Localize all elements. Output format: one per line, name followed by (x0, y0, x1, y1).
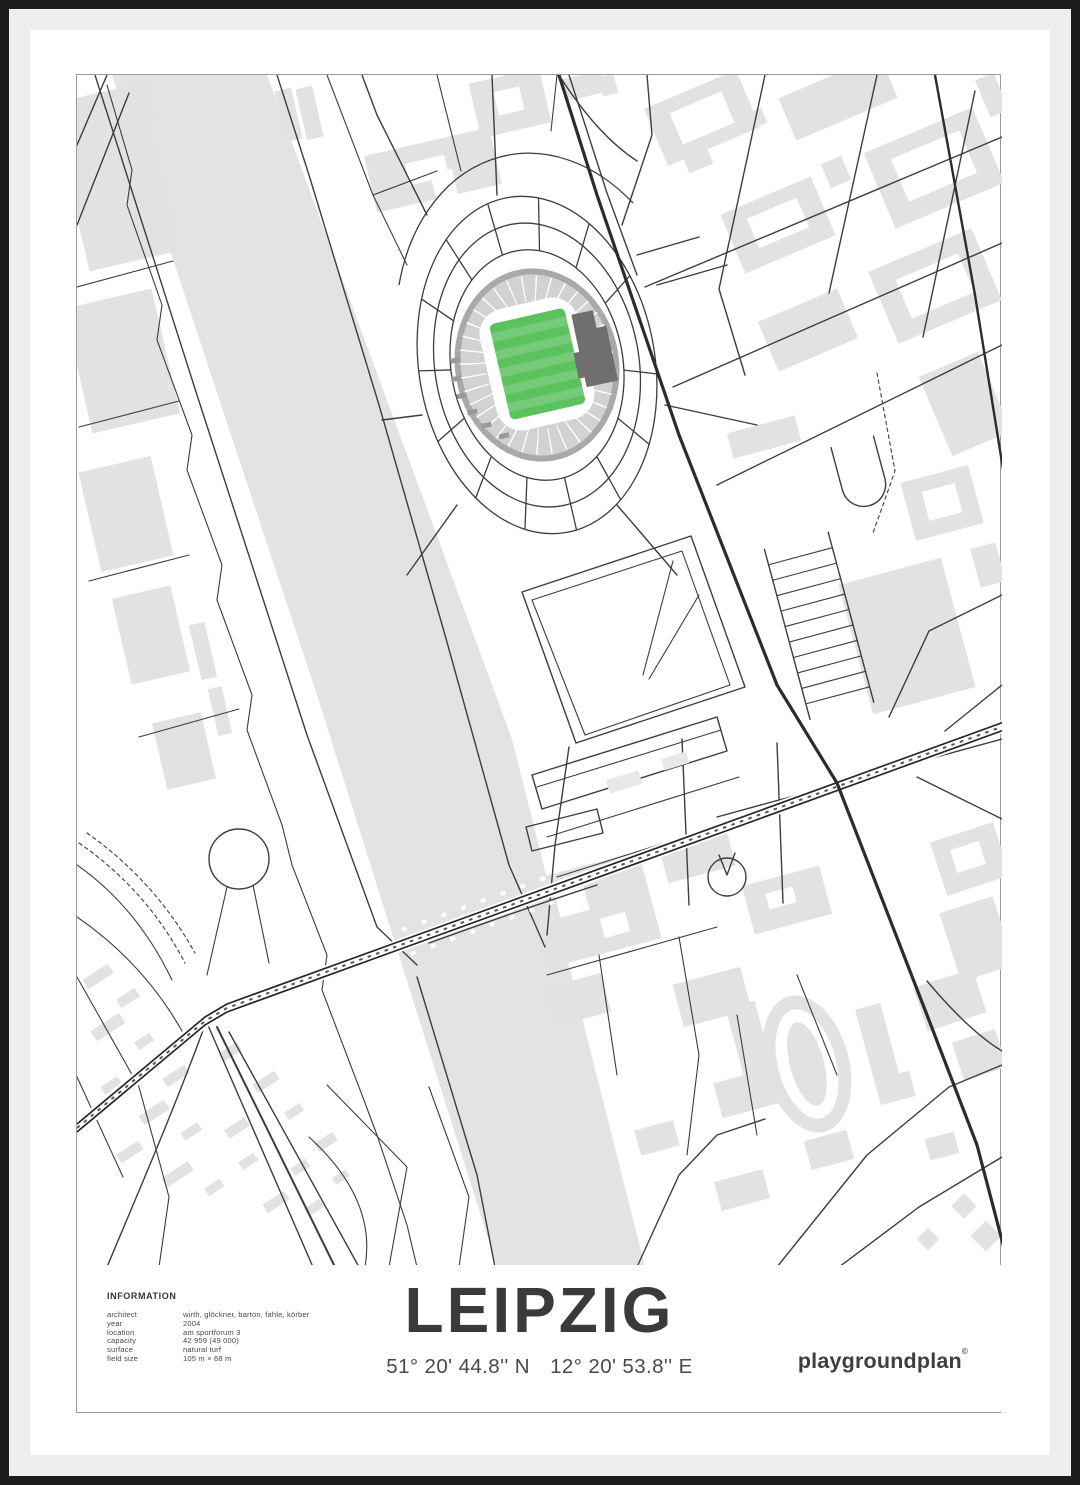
framed-poster: INFORMATION architect wirth, glöckner, b… (0, 0, 1080, 1485)
stadium-map (77, 75, 1002, 1267)
map-svg (77, 75, 1002, 1267)
latitude: 51° 20' 44.8'' N (386, 1355, 530, 1378)
brand-logo: playgroundplan© (798, 1347, 968, 1374)
running-track (748, 986, 865, 1143)
stadium-red-bull-arena (439, 255, 634, 475)
poster-matte: INFORMATION architect wirth, glöckner, b… (9, 9, 1071, 1476)
copyright-mark: © (962, 1347, 968, 1356)
city-title: LEIPZIG (77, 1273, 1002, 1347)
poster-frame: INFORMATION architect wirth, glöckner, b… (0, 0, 1080, 1485)
river-elsterbecken (112, 75, 645, 1267)
dropoff-loop (831, 436, 891, 511)
info-band: INFORMATION architect wirth, glöckner, b… (77, 1265, 1002, 1412)
poster: INFORMATION architect wirth, glöckner, b… (30, 30, 1050, 1455)
longitude: 12° 20' 53.8'' E (550, 1355, 693, 1378)
brand-name: playgroundplan (798, 1349, 962, 1373)
poster-content: INFORMATION architect wirth, glöckner, b… (76, 74, 1001, 1413)
